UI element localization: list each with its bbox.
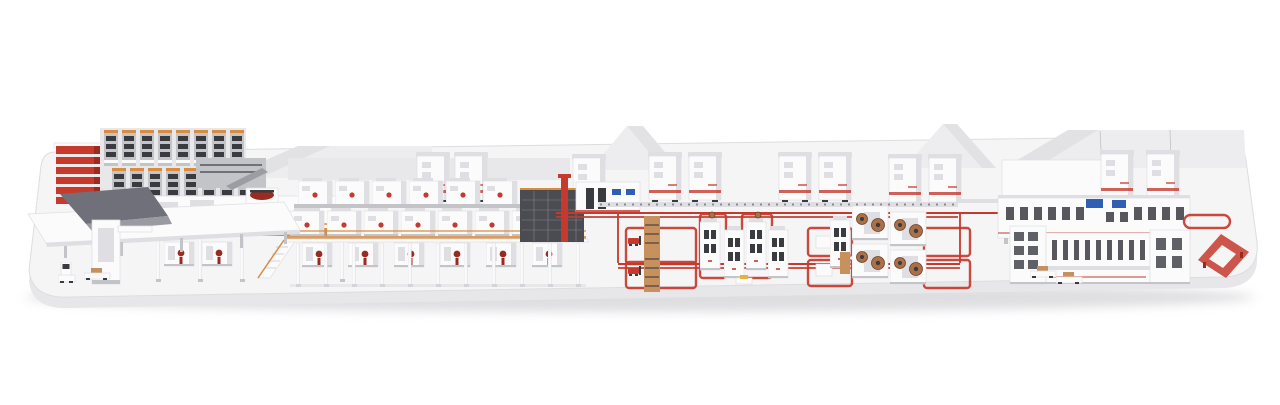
copper-roll bbox=[755, 212, 761, 218]
ground-cabinet bbox=[202, 242, 232, 266]
oven-module bbox=[438, 208, 472, 236]
rack-column bbox=[104, 130, 118, 166]
oven-cabinet bbox=[648, 152, 682, 202]
hmi-screen bbox=[626, 189, 635, 195]
pallet-stack bbox=[840, 252, 850, 274]
rack-column bbox=[122, 130, 136, 166]
oven-cabinet bbox=[688, 152, 722, 202]
oven-module bbox=[327, 208, 361, 236]
rack-column bbox=[140, 130, 154, 166]
control-cabinet-wall bbox=[576, 182, 640, 213]
cabinet-door bbox=[586, 188, 594, 209]
oven-module bbox=[372, 178, 406, 206]
oven-cabinet bbox=[778, 152, 812, 202]
production-line-render: Isometric 3D render of a complete indust… bbox=[0, 0, 1280, 405]
line-monitor-screen bbox=[1086, 199, 1103, 208]
oven-module bbox=[298, 178, 332, 206]
machine-tower bbox=[746, 218, 766, 270]
oven-module bbox=[475, 208, 509, 236]
oven-cabinet bbox=[928, 154, 962, 204]
hmi-screen bbox=[612, 189, 621, 195]
small-cabinet bbox=[816, 236, 832, 248]
rack-column bbox=[176, 130, 190, 166]
flat-roof-hall bbox=[1002, 160, 1112, 198]
machine-tower bbox=[724, 226, 744, 278]
deck-divider bbox=[294, 204, 556, 208]
machine-tower bbox=[700, 218, 720, 270]
small-cabinet bbox=[816, 264, 832, 276]
oven-module bbox=[401, 208, 435, 236]
winder-machine bbox=[852, 244, 888, 278]
ground-cabinet bbox=[164, 242, 194, 266]
copper-roll bbox=[709, 212, 715, 218]
winder-machine bbox=[890, 250, 926, 284]
machine-tower bbox=[768, 226, 788, 278]
pallet-rack bbox=[644, 250, 660, 292]
line-monitor-screen bbox=[1112, 200, 1126, 208]
oven-module bbox=[335, 178, 369, 206]
ground-cabinet bbox=[486, 243, 516, 267]
ground-cabinet bbox=[532, 243, 562, 267]
line-ground-shadow bbox=[290, 284, 586, 287]
scene-canvas: Isometric 3D render of a complete indust… bbox=[0, 0, 1280, 405]
oven-cabinet bbox=[818, 152, 852, 202]
coater-unit bbox=[246, 188, 278, 204]
oven-cabinet bbox=[1146, 150, 1180, 200]
red-pipe bbox=[561, 176, 568, 242]
rack-column bbox=[158, 130, 172, 166]
oven-module bbox=[483, 178, 517, 206]
oven-cabinet bbox=[888, 154, 922, 204]
winder-machine bbox=[852, 206, 888, 240]
oven-module bbox=[446, 178, 480, 206]
oven-module bbox=[409, 178, 443, 206]
oven-cabinet bbox=[1100, 150, 1134, 200]
winder-machine bbox=[890, 212, 926, 246]
oven-module bbox=[364, 208, 398, 236]
